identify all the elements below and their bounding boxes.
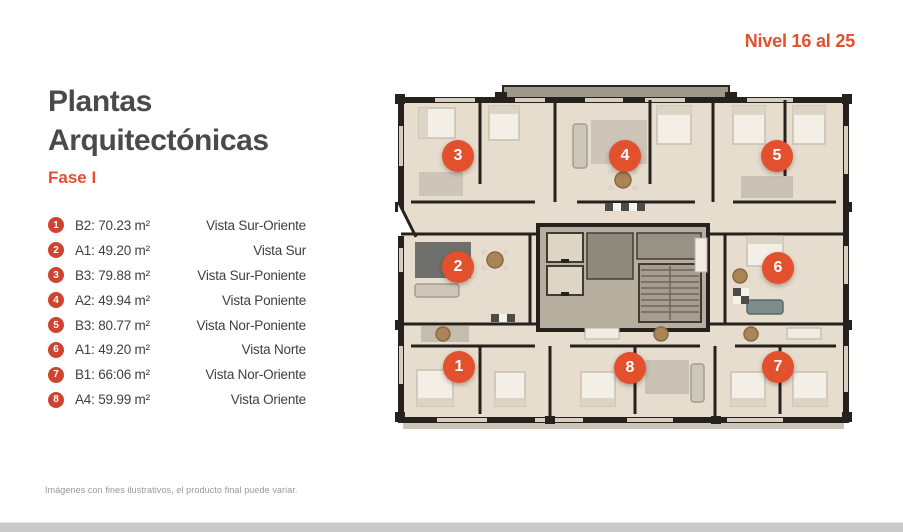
- legend-number: 2: [53, 245, 59, 256]
- legend-item-6: 6 A1: 49.20 m² Vista Norte: [48, 337, 306, 362]
- plan-marker-5: 5: [761, 140, 793, 172]
- legend-number-badge: 3: [48, 267, 64, 283]
- phase-label: Fase I: [48, 168, 96, 188]
- legend: 1 B2: 70.23 m² Vista Sur-Oriente 2 A1: 4…: [48, 213, 306, 412]
- legend-item-2: 2 A1: 49.20 m² Vista Sur: [48, 238, 306, 263]
- legend-unit-label: B1: 66:06 m²: [75, 367, 150, 382]
- legend-number-badge: 6: [48, 342, 64, 358]
- plan-marker-8: 8: [614, 352, 646, 384]
- plan-marker-6: 6: [762, 252, 794, 284]
- plan-marker-7: 7: [762, 351, 794, 383]
- legend-number: 3: [53, 270, 59, 281]
- legend-number: 8: [53, 394, 59, 405]
- plan-marker-1: 1: [443, 351, 475, 383]
- legend-number-badge: 5: [48, 317, 64, 333]
- legend-vista-label: Vista Nor-Poniente: [197, 318, 306, 333]
- page-title-line2: Arquitectónicas: [48, 124, 269, 157]
- legend-item-5: 5 B3: 80.77 m² Vista Nor-Poniente: [48, 313, 306, 338]
- legend-unit-label: A2: 49.94 m²: [75, 293, 150, 308]
- legend-unit-label: B3: 79.88 m²: [75, 268, 150, 283]
- legend-number: 7: [53, 369, 59, 380]
- legend-number-badge: 1: [48, 217, 64, 233]
- legend-number-badge: 4: [48, 292, 64, 308]
- plan-marker-3: 3: [442, 140, 474, 172]
- plan-marker-number: 2: [454, 258, 463, 276]
- plan-marker-number: 8: [626, 359, 635, 377]
- legend-item-3: 3 B3: 79.88 m² Vista Sur-Poniente: [48, 263, 306, 288]
- legend-unit-label: B3: 80.77 m²: [75, 318, 150, 333]
- plan-marker-number: 3: [454, 147, 463, 165]
- legend-vista-label: Vista Sur-Poniente: [197, 268, 306, 283]
- legend-number: 1: [53, 220, 59, 231]
- plan-marker-number: 6: [774, 259, 783, 277]
- page-title-line1: Plantas: [48, 85, 152, 118]
- legend-number: 6: [53, 344, 59, 355]
- legend-item-8: 8 A4: 59.99 m² Vista Oriente: [48, 387, 306, 412]
- disclaimer-text: Imágenes con fines ilustrativos, el prod…: [45, 485, 298, 495]
- plan-marker-number: 1: [455, 358, 464, 376]
- plan-marker-4: 4: [609, 140, 641, 172]
- plan-marker-number: 5: [773, 147, 782, 165]
- legend-item-4: 4 A2: 49.94 m² Vista Poniente: [48, 288, 306, 313]
- legend-unit-label: B2: 70.23 m²: [75, 218, 150, 233]
- legend-vista-label: Vista Norte: [242, 342, 306, 357]
- plan-marker-2: 2: [442, 251, 474, 283]
- plan-marker-number: 7: [774, 358, 783, 376]
- floor-plan: 1 2 3 4 5 6 7 8: [395, 84, 852, 434]
- legend-vista-label: Vista Oriente: [231, 392, 306, 407]
- legend-vista-label: Vista Poniente: [222, 293, 306, 308]
- legend-number: 5: [53, 320, 59, 331]
- legend-unit-label: A1: 49.20 m²: [75, 243, 150, 258]
- legend-item-7: 7 B1: 66:06 m² Vista Nor-Oriente: [48, 362, 306, 387]
- legend-vista-label: Vista Sur: [253, 243, 306, 258]
- legend-vista-label: Vista Nor-Oriente: [205, 367, 306, 382]
- legend-vista-label: Vista Sur-Oriente: [206, 218, 306, 233]
- plan-marker-number: 4: [621, 147, 630, 165]
- level-label: Nivel 16 al 25: [745, 31, 855, 52]
- legend-unit-label: A1: 49.20 m²: [75, 342, 150, 357]
- legend-item-1: 1 B2: 70.23 m² Vista Sur-Oriente: [48, 213, 306, 238]
- legend-number-badge: 7: [48, 367, 64, 383]
- slide: Nivel 16 al 25 PlantasArquitectónicas Fa…: [0, 0, 903, 532]
- page-title: PlantasArquitectónicas: [48, 82, 269, 160]
- legend-number-badge: 2: [48, 242, 64, 258]
- legend-number-badge: 8: [48, 392, 64, 408]
- bottom-gray-bar: [0, 522, 903, 532]
- legend-unit-label: A4: 59.99 m²: [75, 392, 150, 407]
- legend-number: 4: [53, 295, 59, 306]
